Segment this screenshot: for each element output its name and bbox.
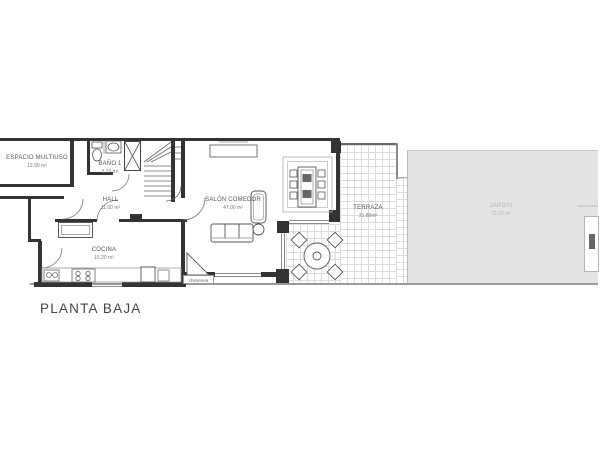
dining-set: [283, 157, 332, 212]
room-name: ESPACIO MULTIUSO: [6, 155, 68, 163]
plan-detail-layer: [0, 0, 600, 450]
edge-structure: [584, 216, 599, 272]
page-title: PLANTA BAJA: [40, 301, 141, 316]
room-name: JARDIN: [477, 203, 525, 211]
room-name: COCINA: [80, 247, 128, 255]
room-label-jardin: JARDIN 72.00 m²: [477, 203, 525, 217]
side-table: [253, 224, 264, 235]
edge-structure-detail: [589, 234, 595, 249]
room-name: SALÓN COMEDOR: [200, 197, 266, 205]
room-area: 47.00 m²: [200, 205, 266, 212]
stove-icon: [72, 269, 95, 282]
room-label-salon-comedor: SALÓN COMEDOR 47.00 m²: [200, 197, 266, 211]
room-label-hall: HALL 11.00 m²: [88, 197, 133, 211]
room-label-bano1: BAÑO 1 3.10 m²: [92, 161, 128, 175]
room-name: HALL: [88, 197, 133, 205]
fireplace-icon: [187, 253, 209, 275]
room-label-espacio-multiuso: ESPACIO MULTIUSO 12.90 m²: [6, 155, 68, 169]
kitchen-unit: [158, 270, 169, 281]
room-label-cocina: COCINA 16.20 m²: [80, 247, 128, 261]
room-label-terraza: TERRAZA 31.80m²: [344, 205, 392, 219]
terrace-table-set: [291, 232, 343, 280]
room-name: BAÑO 1: [92, 161, 128, 169]
tv-cabinet: [210, 142, 257, 157]
room-area: 16.20 m²: [80, 255, 128, 262]
kitchen-sink-icon: [44, 270, 59, 281]
room-area: 3.10 m²: [92, 169, 128, 176]
edge-text-smudge: [577, 205, 598, 207]
room-area: 72.00 m²: [477, 211, 525, 218]
chimenea-label: chimenea: [183, 275, 214, 284]
fridge-icon: [141, 267, 155, 282]
room-name: TERRAZA: [344, 205, 392, 213]
staircase: [144, 142, 181, 201]
room-area: 11.00 m²: [88, 205, 133, 212]
room-area: 12.90 m²: [6, 163, 68, 170]
sink-icon: [106, 141, 121, 153]
room-area: 31.80m²: [344, 213, 392, 220]
floor-plan-page: ESPACIO MULTIUSO 12.90 m² BAÑO 1 3.10 m²…: [0, 0, 600, 450]
toilet-icon: [92, 142, 102, 161]
sofa: [211, 224, 253, 242]
